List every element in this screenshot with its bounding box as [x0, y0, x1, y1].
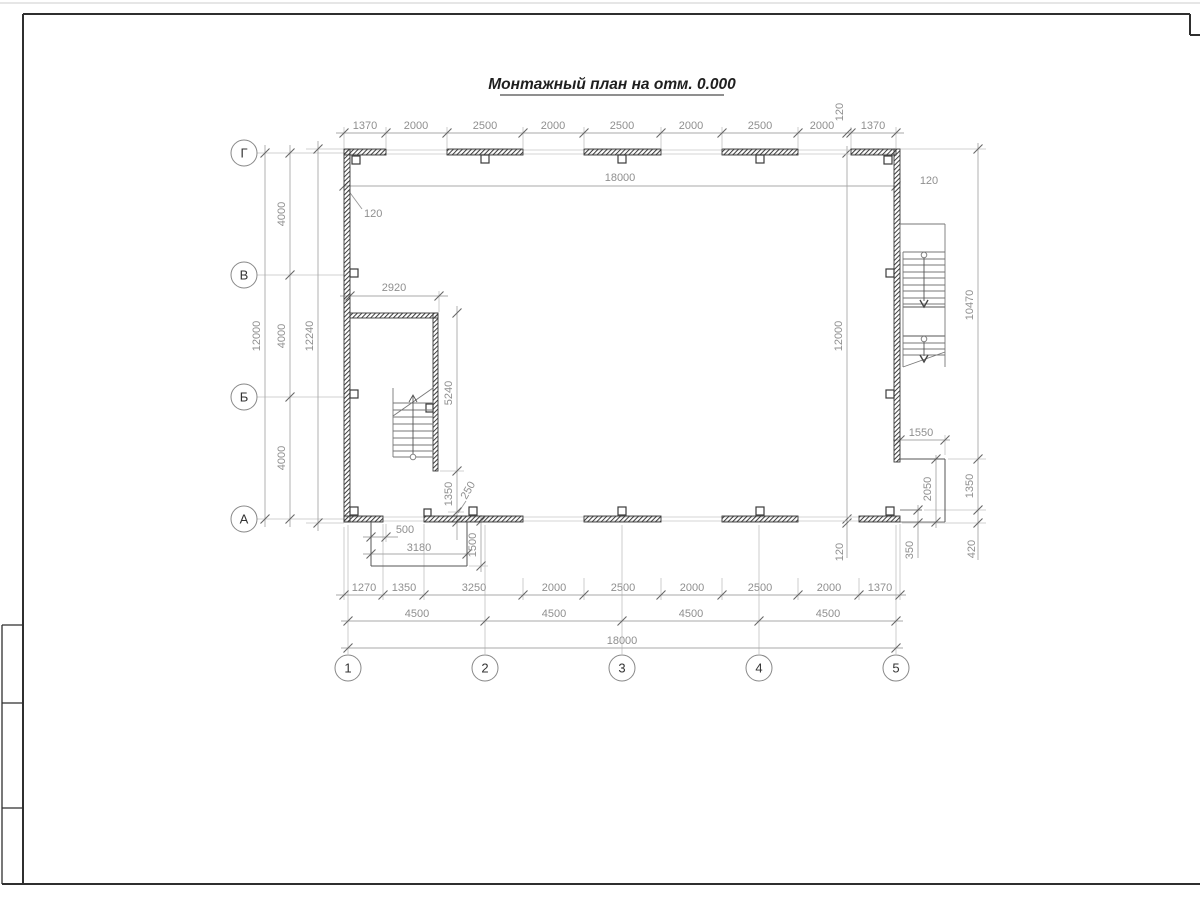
dim-label: 2500 — [611, 582, 635, 594]
wall-top-panel — [851, 149, 896, 155]
dim-label: 1370 — [353, 120, 377, 132]
page-frame — [0, 3, 1200, 884]
axis-row-label: В — [240, 268, 249, 283]
dim-label: 120 — [364, 208, 382, 220]
dim-label: 1500 — [467, 533, 479, 557]
dim-label: 4500 — [679, 608, 703, 620]
dim-top-chain: 1370 2000 2500 2000 2500 2000 2500 2000 … — [353, 103, 938, 220]
dim-label: 2000 — [810, 120, 834, 132]
dim-label: 1370 — [861, 120, 885, 132]
dim-label: 4000 — [276, 202, 288, 226]
dim-label: 2500 — [610, 120, 634, 132]
drawing-title: Монтажный план на отм. 0.000 — [488, 76, 736, 95]
wall-bottom-panel — [424, 516, 523, 522]
drawing-sheet: Монтажный план на отм. 0.000 — [0, 0, 1200, 900]
stair-enclosure-wall-top — [350, 313, 438, 318]
dim-label: 2920 — [382, 282, 406, 294]
page-title: Монтажный план на отм. 0.000 — [488, 76, 736, 93]
dim-label: 3250 — [462, 582, 486, 594]
wall-right — [894, 149, 900, 462]
stair-down-arrow — [920, 300, 928, 307]
axis-col-label: 5 — [892, 661, 899, 676]
stair-start-node — [921, 252, 927, 258]
wall-top-panel — [584, 149, 661, 155]
dim-label: 1350 — [443, 482, 455, 506]
dim-label: 5240 — [443, 381, 455, 405]
axis-circles-cols: 1 2 3 4 5 — [335, 655, 909, 681]
dim-label: 120 — [920, 175, 938, 187]
dim-left-side: 12000 4000 4000 4000 12240 — [251, 202, 316, 470]
connector-tabs — [350, 155, 894, 516]
dim-label: 4500 — [816, 608, 840, 620]
dim-label: 12000 — [833, 321, 845, 352]
stair-right — [900, 224, 945, 367]
dim-label: 1270 — [352, 582, 376, 594]
frame-side-column — [2, 625, 23, 884]
dim-label: 4000 — [276, 446, 288, 470]
dim-label: 2000 — [817, 582, 841, 594]
dim-label: 1350 — [392, 582, 416, 594]
stair-left — [393, 388, 433, 460]
dim-label: 4000 — [276, 324, 288, 348]
dim-label: 2500 — [473, 120, 497, 132]
extension-lines — [257, 127, 986, 654]
wall-top-panel — [722, 149, 798, 155]
dim-label: 2000 — [542, 582, 566, 594]
dim-label: 18000 — [605, 172, 636, 184]
dim-label: 12240 — [304, 321, 316, 352]
axis-col-label: 2 — [481, 661, 488, 676]
wall-bottom-panel — [722, 516, 798, 522]
axis-col-label: 3 — [618, 661, 625, 676]
dim-label: 2000 — [404, 120, 428, 132]
wall-top-panel — [447, 149, 523, 155]
dim-label: 12000 — [251, 321, 263, 352]
stair-start-node — [921, 336, 927, 342]
wall-bottom-panel — [344, 516, 383, 522]
dim-label: 1370 — [868, 582, 892, 594]
wall-top-panel — [344, 149, 386, 155]
wall-guide-lines — [344, 150, 900, 521]
wall-bottom-panel — [584, 516, 661, 522]
dim-label: 420 — [966, 540, 978, 558]
dim-label: 120 — [834, 543, 846, 561]
stair-start-node — [410, 454, 416, 460]
dim-label: 2000 — [541, 120, 565, 132]
walls — [344, 149, 900, 522]
axis-col-label: 1 — [344, 661, 351, 676]
axis-row-label: Б — [240, 390, 249, 405]
dim-label: 1350 — [964, 474, 976, 498]
dim-label: 120 — [834, 103, 846, 121]
dim-label: 500 — [396, 524, 414, 536]
dim-label: 10470 — [964, 290, 976, 321]
dim-label: 2050 — [922, 477, 934, 501]
wall-bottom-panel — [859, 516, 900, 522]
dim-right-side: 12000 120 10470 1350 420 1550 2050 350 — [833, 290, 978, 561]
dim-label: 350 — [904, 541, 916, 559]
dim-label: 4500 — [405, 608, 429, 620]
axis-row-label: Г — [240, 146, 247, 161]
dim-label: 2500 — [748, 120, 772, 132]
dim-label: 4500 — [542, 608, 566, 620]
dim-label: 250 — [459, 480, 479, 502]
stair-enclosure-wall-right — [433, 313, 438, 471]
axis-col-label: 4 — [755, 661, 762, 676]
dim-label: 1550 — [909, 427, 933, 439]
dim-label: 18000 — [607, 635, 638, 647]
dim-label: 2000 — [680, 582, 704, 594]
wall-left — [344, 149, 350, 522]
axis-row-label: А — [240, 512, 249, 527]
dim-label: 2000 — [679, 120, 703, 132]
dim-label: 2500 — [748, 582, 772, 594]
floor-plan-drawing: Монтажный план на отм. 0.000 — [0, 0, 1200, 900]
dim-label: 3180 — [407, 542, 431, 554]
